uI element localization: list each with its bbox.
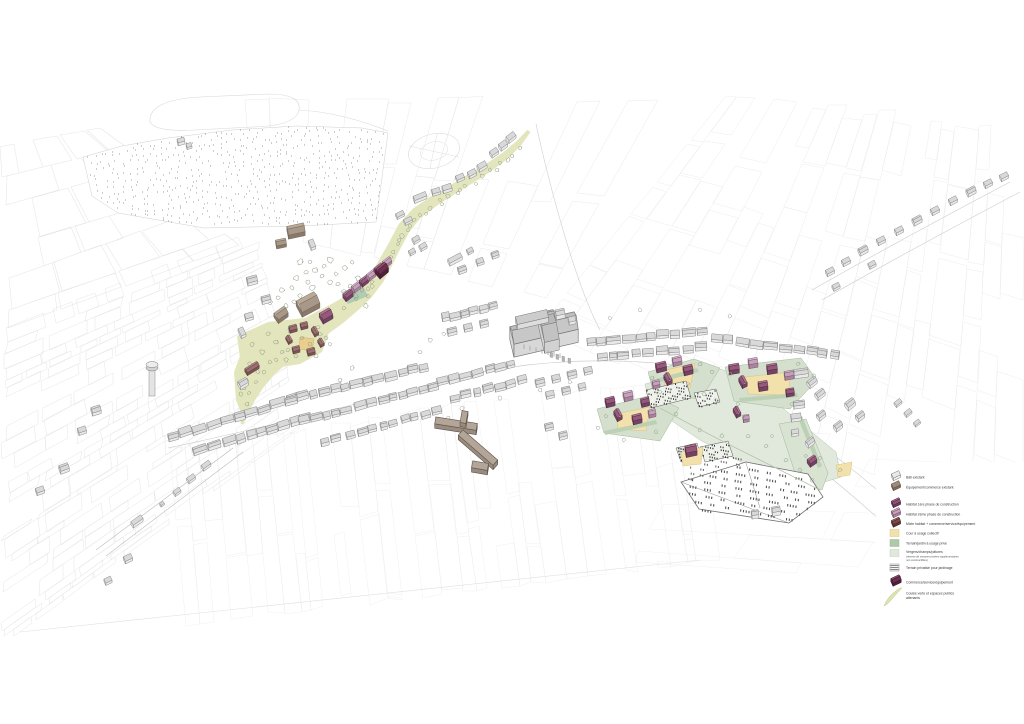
svg-text:Cour à usage collectif: Cour à usage collectif <box>906 532 939 536</box>
svg-text:attenants: attenants <box>906 596 920 600</box>
svg-text:Mixte habitat + commerce/servi: Mixte habitat + commerce/service/équipem… <box>906 522 975 526</box>
svg-text:Équipement/commerce existant: Équipement/commerce existant <box>906 485 954 490</box>
svg-text:Habitat 2ème phase de construc: Habitat 2ème phase de construction <box>906 513 960 517</box>
svg-text:Terrain privatisé pour jardina: Terrain privatisé pour jardinage <box>906 566 953 570</box>
svg-text:non constructibles): non constructibles) <box>906 558 928 562</box>
svg-text:Bâti existant: Bâti existant <box>906 476 925 480</box>
svg-text:Vergers/champs/pâtures: Vergers/champs/pâtures <box>906 550 943 554</box>
svg-text:Habitat 1ère phase de construc: Habitat 1ère phase de construction <box>906 503 959 507</box>
svg-text:Coulée verte et espaces public: Coulée verte et espaces publics <box>906 592 954 596</box>
svg-text:Terrain/jardin à usage privé: Terrain/jardin à usage privé <box>906 542 947 546</box>
svg-text:Commerce/service/équipement: Commerce/service/équipement <box>906 581 953 585</box>
